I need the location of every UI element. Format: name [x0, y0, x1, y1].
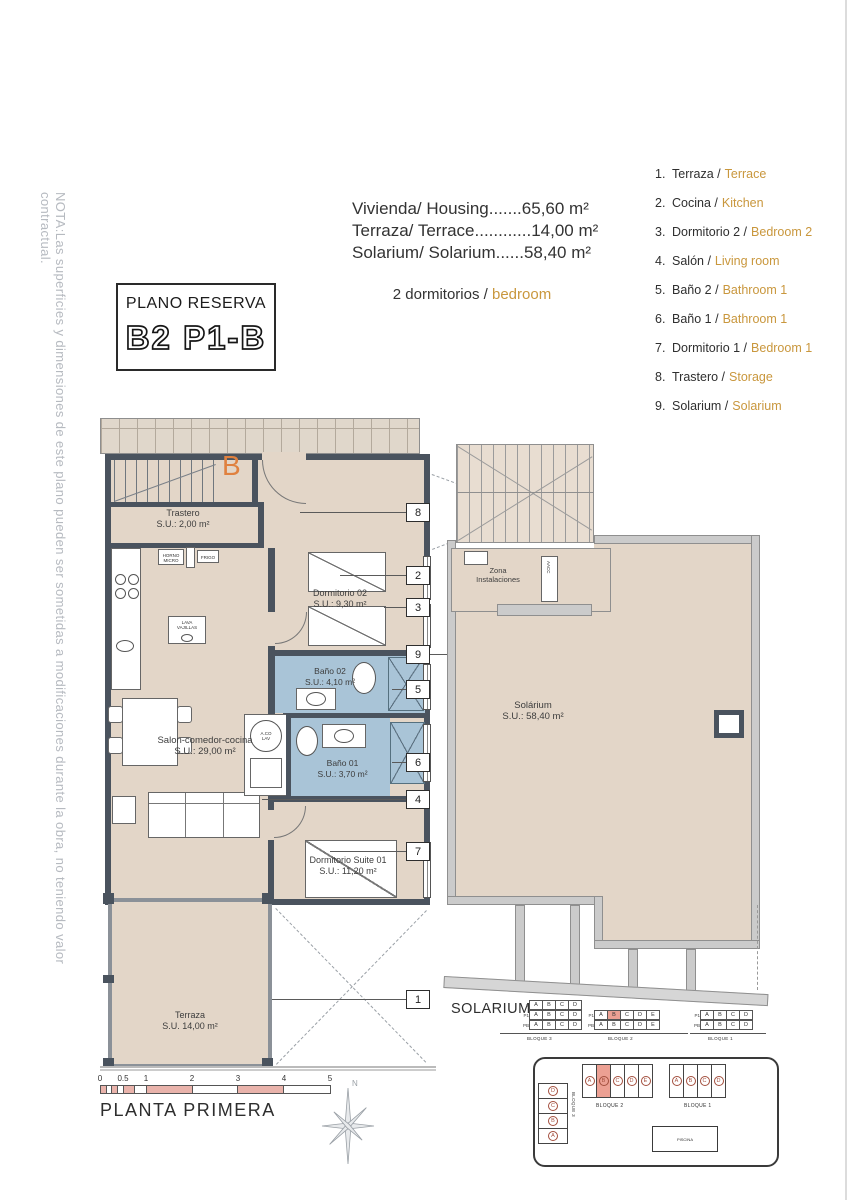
- siteplan-bloque3-units: DCBA: [538, 1084, 568, 1144]
- hob-burner-icon: [115, 588, 126, 599]
- room-label-dormitorio02: Dormitorio 02 S.U.: 9,30 m²: [288, 588, 392, 610]
- callout-7: 7: [406, 842, 430, 861]
- siteplan-bloque1-units: ABCD: [670, 1064, 726, 1098]
- unit-code: B2 P1-B: [118, 319, 274, 357]
- site-unit: B: [596, 1064, 611, 1098]
- leader-line: [340, 575, 406, 576]
- legend-item: 7.Dormitorio 1 /Bedroom 1: [655, 342, 825, 355]
- site-unit: A: [669, 1064, 684, 1098]
- wall: [751, 535, 760, 947]
- solarium-key-cell: B: [713, 1010, 727, 1020]
- equipment-box: [464, 551, 488, 565]
- entry-letter: B: [222, 450, 241, 482]
- plan-page: NOTA:Las superficies y dimensiones de es…: [0, 0, 848, 1200]
- callout-2: 2: [406, 566, 430, 585]
- siteplan-bloque2-units: ABCDE: [583, 1064, 653, 1098]
- scale-tick: 4: [282, 1074, 286, 1083]
- solarium-key-cell: C: [555, 1000, 569, 1010]
- scale-tick: 2: [190, 1074, 194, 1083]
- bed-icon: [308, 606, 386, 646]
- solarium-key-cell: E: [646, 1020, 660, 1030]
- solarium-key-cell: D: [568, 1020, 582, 1030]
- solarium-key-cell: A: [529, 1010, 543, 1020]
- dashed-line: [757, 905, 758, 990]
- chair-icon: [108, 737, 123, 754]
- svg-text:N: N: [352, 1079, 358, 1088]
- pillar: [103, 975, 114, 983]
- callout-5: 5: [406, 680, 430, 699]
- siteplan-bloque2-label: BLOQUE 2: [596, 1103, 623, 1109]
- callout-3: 3: [406, 598, 430, 617]
- scale-tick: 1: [144, 1074, 148, 1083]
- room-label-zona: Zona Instalaciones: [458, 566, 538, 584]
- wall: [497, 604, 592, 616]
- site-unit: A: [538, 1128, 568, 1144]
- site-unit: D: [711, 1064, 726, 1098]
- solarium-key-cell: D: [633, 1020, 647, 1030]
- pillar: [570, 905, 580, 986]
- skey-table-2: P1ABCDEPBABCDE: [584, 1011, 660, 1031]
- surface-line-solarium: Solarium/ Solarium......58,40 m²: [352, 242, 598, 264]
- solarium-key-cell: C: [555, 1010, 569, 1020]
- solarium-key-cell: A: [700, 1020, 714, 1030]
- room-label-bano02: Baño 02 S.U.: 4,10 m²: [285, 666, 375, 688]
- sink-icon: [181, 634, 193, 642]
- site-unit: C: [610, 1064, 625, 1098]
- pillar: [628, 949, 638, 990]
- bed-icon: [308, 552, 386, 592]
- solarium-key-cell: B: [607, 1020, 621, 1030]
- legend-item: 9.Solarium /Solarium: [655, 400, 825, 413]
- chair-icon: [177, 706, 192, 723]
- callout-6: 6: [406, 753, 430, 772]
- divider: [100, 1066, 436, 1072]
- plan-type-label: PLANO RESERVA: [118, 295, 274, 313]
- pillar: [103, 893, 114, 904]
- basin-icon: [334, 729, 354, 743]
- site-unit: C: [538, 1098, 568, 1114]
- pillar: [262, 893, 273, 904]
- hob-burner-icon: [115, 574, 126, 585]
- floor-name: PLANTA PRIMERA: [100, 1100, 276, 1121]
- leader-line: [392, 762, 406, 763]
- site-unit: B: [683, 1064, 698, 1098]
- bidet-icon: [250, 758, 282, 788]
- legend-list: 1.Terraza /Terrace2.Cocina /Kitchen3.Dor…: [655, 168, 825, 429]
- side-table-icon: [112, 796, 136, 824]
- surface-summary: Vivienda/ Housing.......65,60 m² Terraza…: [352, 198, 598, 264]
- solarium-key-cell: B: [542, 1020, 556, 1030]
- solarium-key-cell: D: [739, 1020, 753, 1030]
- callout-8: 8: [406, 503, 430, 522]
- solarium-key-cell: C: [555, 1020, 569, 1030]
- dishwasher-icon: LAVA VAJILLAS: [168, 616, 206, 644]
- oven-microwave-icon: HORNO MICRO: [158, 549, 184, 565]
- room-label-salon: Salon-comedor-cocina S.U.: 29,00 m²: [140, 735, 270, 757]
- table-baseline: [584, 1033, 688, 1034]
- wall: [252, 460, 258, 502]
- scale-bar: [100, 1085, 331, 1094]
- site-unit: B: [538, 1113, 568, 1129]
- solarium-key-cell: A: [529, 1020, 543, 1030]
- wall: [594, 535, 760, 544]
- bedrooms-line: 2 dormitorios / bedroom: [352, 286, 592, 303]
- solarium-key-cell: A: [700, 1010, 714, 1020]
- callout-1: 1: [406, 990, 430, 1009]
- solarium-key-cell: B: [542, 1000, 556, 1010]
- jacuzzi-unit: [714, 710, 744, 738]
- siteplan-bloque3-label: BLOQUE 3: [571, 1092, 576, 1117]
- solarium-key-cell: B: [542, 1010, 556, 1020]
- site-unit: D: [624, 1064, 639, 1098]
- door-opening: [268, 612, 275, 646]
- sofa-icon: [148, 792, 260, 838]
- scale-tick: 0.5: [117, 1074, 128, 1083]
- walkway-hatch: [100, 418, 420, 454]
- room-label-solarium: Solárium S.U.: 58,40 m²: [478, 700, 588, 722]
- skey-table-3: P1ABCDPBABCD: [690, 1011, 753, 1031]
- room-label-suite: Dormitorio Suite 01 S.U.: 11,20 m²: [290, 855, 406, 877]
- title-box: PLANO RESERVA B2 P1-B: [116, 283, 276, 371]
- disclaimer-note: NOTA:Las superficies y dimensiones de es…: [38, 192, 68, 1032]
- solarium-key-cell: D: [739, 1010, 753, 1020]
- stair-landing-line: [456, 492, 594, 493]
- siteplan-bloque1-label: BLOQUE 1: [684, 1103, 711, 1109]
- room-label-trastero: Trastero S.U.: 2,00 m²: [128, 508, 238, 530]
- room-label-terraza: Terraza S.U. 14,00 m²: [140, 1010, 240, 1032]
- room-label-bano01: Baño 01 S.U.: 3,70 m²: [300, 758, 385, 780]
- solarium-key-cell: C: [620, 1020, 634, 1030]
- aacc-unit: AACC: [541, 556, 558, 602]
- solarium-key-cell: A: [594, 1010, 608, 1020]
- solarium-key-cell: A: [529, 1000, 543, 1010]
- basin-icon: [306, 692, 326, 706]
- dashed-line: [275, 908, 426, 1063]
- page-edge: [845, 0, 847, 1200]
- site-unit: E: [638, 1064, 653, 1098]
- legend-item: 4.Salón /Living room: [655, 255, 825, 268]
- cabinet-icon: [186, 547, 195, 568]
- solarium-key-cell: A: [594, 1020, 608, 1030]
- toilet-icon: [296, 726, 318, 756]
- fridge-icon: FRIGO: [197, 550, 219, 563]
- skey-block-name: BLOQUE 3: [527, 1036, 552, 1041]
- vanity-icon: [322, 724, 366, 748]
- sink-icon: [116, 640, 134, 652]
- wall: [258, 502, 264, 548]
- solarium-key-cell: D: [568, 1000, 582, 1010]
- chair-icon: [108, 706, 123, 723]
- site-unit: A: [582, 1064, 597, 1098]
- legend-item: 5.Baño 2 /Bathroom 1: [655, 284, 825, 297]
- skey-block-name: BLOQUE 1: [708, 1036, 733, 1041]
- wall: [594, 940, 760, 949]
- solarium-key-cell: E: [646, 1010, 660, 1020]
- legend-item: 1.Terraza /Terrace: [655, 168, 825, 181]
- site-unit: C: [697, 1064, 712, 1098]
- legend-item: 6.Baño 1 /Bathroom 1: [655, 313, 825, 326]
- solarium-floor: [594, 543, 752, 943]
- pool-icon: PISCINA: [652, 1126, 718, 1152]
- surface-line-terrace: Terraza/ Terrace............14,00 m²: [352, 220, 598, 242]
- legend-item: 3.Dormitorio 2 /Bedroom 2: [655, 226, 825, 239]
- callout-4: 4: [406, 790, 430, 809]
- legend-item: 2.Cocina /Kitchen: [655, 197, 825, 210]
- table-baseline: [690, 1033, 766, 1034]
- leader-line: [262, 799, 406, 800]
- terrace-outline: [108, 898, 272, 1068]
- solarium-key-cell: B: [607, 1010, 621, 1020]
- solarium-key-cell: D: [633, 1010, 647, 1020]
- compass-icon: N: [318, 1076, 378, 1168]
- kitchen-counter: [111, 548, 141, 690]
- leader-line: [392, 689, 406, 690]
- vanity-icon: [296, 688, 336, 710]
- skey-table-1: SABCDP1ABCDPBABCD: [519, 1001, 582, 1031]
- scale-tick: 0: [98, 1074, 102, 1083]
- wall: [111, 502, 264, 507]
- pillar: [515, 905, 525, 983]
- pillar: [686, 949, 696, 995]
- surface-line-housing: Vivienda/ Housing.......65,60 m²: [352, 198, 598, 220]
- leader-line: [300, 512, 406, 513]
- solarium-key-cell: D: [568, 1010, 582, 1020]
- legend-item: 8.Trastero /Storage: [655, 371, 825, 384]
- wall: [268, 656, 275, 714]
- wall: [286, 714, 291, 796]
- solarium-key-cell: C: [620, 1010, 634, 1020]
- site-unit: D: [538, 1083, 568, 1099]
- wall: [447, 896, 603, 905]
- skey-block-name: BLOQUE 2: [608, 1036, 633, 1041]
- solarium-key-cell: C: [726, 1020, 740, 1030]
- solarium-key-cell: C: [726, 1010, 740, 1020]
- leader-line: [272, 999, 406, 1000]
- callout-9: 9: [406, 645, 430, 664]
- hob-burner-icon: [128, 588, 139, 599]
- hob-burner-icon: [128, 574, 139, 585]
- leader-line: [330, 851, 406, 852]
- solarium-key-cell: B: [713, 1020, 727, 1030]
- scale-tick: 3: [236, 1074, 240, 1083]
